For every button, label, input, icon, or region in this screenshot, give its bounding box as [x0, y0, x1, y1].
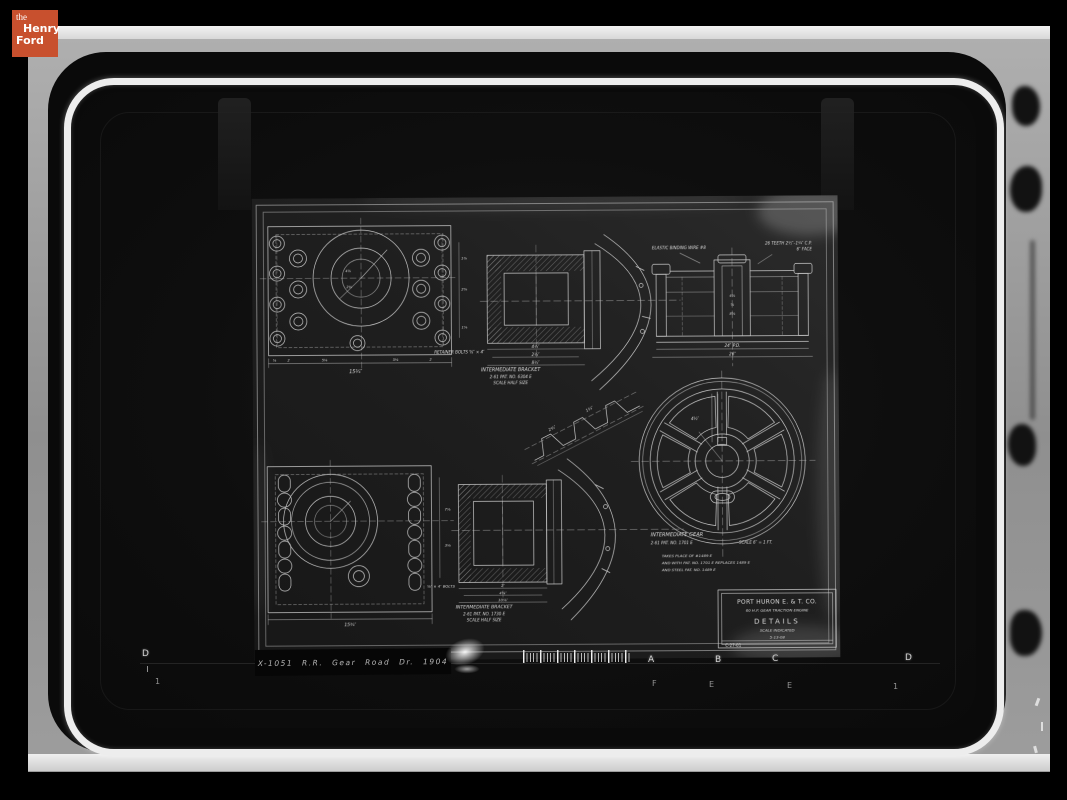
- emulsion-blob: [1012, 86, 1040, 126]
- caption-strip: X-1051 R.R. Gear Road Dr. 1904: [255, 648, 451, 676]
- blueprint-sheet: ⅝ 2 5⅛ 5⅛ 2 15¾″ 1⅞ 2⅝ 1⅞ 4⅞ 2⅛ 4½″ 2½″ …: [252, 195, 841, 661]
- gear-note: AND STEEL PAT. NO. 1489 E: [661, 567, 716, 572]
- dim-label: ⅝: [730, 303, 734, 307]
- copy-stand-post-left: [218, 98, 251, 210]
- emulsion-blob: [1010, 166, 1042, 212]
- dim-label: 4⅞: [729, 294, 735, 298]
- scratch-mark: [1041, 722, 1043, 731]
- view-ref: 2-61 PAT. NO. 1701 E: [651, 540, 694, 545]
- dim-label: 1⅞: [461, 256, 467, 260]
- emulsion-streak: [1030, 240, 1035, 420]
- dim-label: 15¾″: [344, 622, 356, 628]
- title-block-subtitle: 60 H.P. GEAR TRACTION ENGINE: [746, 607, 809, 612]
- view-ref: 2-61 PAT. NO. 6304 E: [490, 374, 533, 379]
- dim-label: 4½″: [532, 344, 540, 349]
- view-scale: SCALE HALF SIZE: [467, 617, 502, 622]
- dim-label: 3⅛: [445, 543, 451, 548]
- dim-label: 4⅞: [345, 269, 351, 273]
- ruler-letter: D: [905, 654, 912, 663]
- section-note-right2: 6″ FACE: [796, 246, 812, 251]
- logo-ford: Ford: [16, 35, 58, 46]
- dim-label: 2″: [501, 583, 505, 588]
- view-scale: SCALE 6″ = 1 FT.: [739, 540, 772, 545]
- gear-note: AND WITH PAT. NO. 1701 E REPLACES 1489 E: [661, 560, 751, 566]
- dim-label: 2½″: [532, 352, 540, 357]
- gear-note: TAKES PLACE OF #1489 E: [662, 553, 713, 558]
- dim-label: 4⅝″: [499, 590, 507, 595]
- title-block-date: 5-13-08: [770, 635, 786, 640]
- ruler-letter: A: [648, 656, 654, 665]
- bolts-note: ⅝″ × 4″ BOLTS: [427, 584, 456, 589]
- dim-label: 7⅞: [444, 507, 450, 512]
- dim-label: 5⅛: [393, 358, 399, 362]
- dim-label: ⅝: [273, 359, 277, 363]
- dim-label: 5⅛: [322, 358, 328, 362]
- view-scale: SCALE HALF SIZE: [493, 380, 528, 385]
- ruler-letter: B: [715, 656, 721, 665]
- dim-label: 4½″: [691, 416, 699, 421]
- dim-label: 2⅝: [461, 287, 467, 291]
- registration-mark: E: [787, 682, 792, 690]
- view-label: INTERMEDIATE BRACKET: [456, 604, 514, 610]
- ruler-tick: [147, 666, 148, 672]
- dim-label: 8½″: [532, 360, 540, 365]
- ruler-major-ticks: [523, 650, 630, 663]
- emulsion-blob: [1010, 610, 1042, 656]
- backing-white-strip-top: [28, 26, 1050, 39]
- ruler-letter: C: [772, 655, 778, 664]
- section-note-left: ELASTIC BINDING WIRE #8: [652, 245, 706, 250]
- title-block-number: C-27-01: [725, 643, 741, 648]
- registration-mark: 1: [893, 683, 898, 691]
- view-ref: 2-61 PAT. NO. 1730 E: [463, 611, 506, 616]
- ruler-letter: D: [142, 650, 149, 659]
- title-block-company: PORT HURON E. & T. CO.: [737, 598, 817, 605]
- light-flare-small: [450, 663, 484, 675]
- title-block-scale: SCALE INDICATED: [760, 627, 795, 632]
- dim-label: 15¾″: [349, 369, 362, 375]
- registration-mark: F: [652, 680, 657, 688]
- dim-label: 24″ P.D.: [724, 343, 740, 348]
- view-label: INTERMEDIATE BRACKET: [481, 367, 541, 373]
- dim-label: 2⅛: [346, 285, 352, 289]
- registration-mark: 1: [155, 678, 160, 686]
- title-block-title: DETAILS: [754, 617, 800, 625]
- dim-label: 1⅞: [461, 325, 467, 329]
- emulsion-blob: [1008, 424, 1036, 466]
- henry-ford-logo: the Henry Ford: [12, 10, 58, 57]
- dim-label: 26″: [729, 351, 736, 356]
- backing-white-strip-bottom: [28, 754, 1050, 771]
- registration-mark: E: [709, 681, 714, 689]
- dim-label: 10⅞″: [498, 597, 509, 602]
- photo-of-glass-plate-negative: ⅝ 2 5⅛ 5⅛ 2 15¾″ 1⅞ 2⅝ 1⅞ 4⅞ 2⅛ 4½″ 2½″ …: [0, 0, 1067, 800]
- retainer-note: RETAINER BOLTS ⅝″ × 4″: [434, 349, 485, 354]
- section-note-right: 26 TEETH 2½″–1¼″ C.P.: [765, 240, 812, 245]
- caption-text: X-1051 R.R. Gear Road Dr. 1904: [258, 657, 448, 668]
- logo-the: the: [16, 13, 58, 22]
- dim-label: 8⅝: [729, 312, 735, 316]
- logo-henry: Henry: [23, 23, 58, 34]
- view-label: INTERMEDIATE GEAR: [651, 532, 704, 538]
- copy-stand-post-right: [821, 98, 854, 210]
